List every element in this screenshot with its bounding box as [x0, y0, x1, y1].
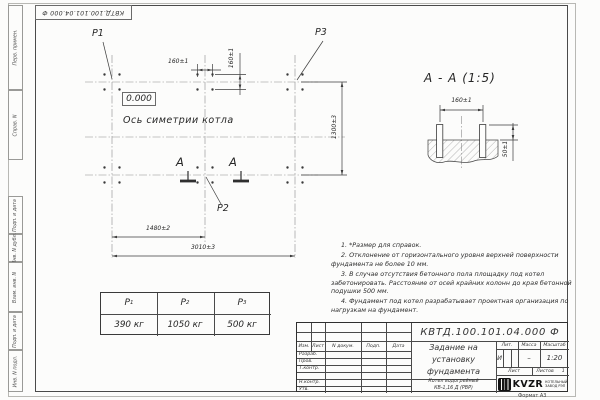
anchor-bolt-right [480, 125, 486, 158]
dim-section-protrusion: 50±1 [500, 134, 512, 164]
elevation-mark: 0.000 [122, 92, 156, 106]
load-table: Р1 Р2 Р3 390 кг 1050 кг 500 кг [100, 292, 270, 335]
load-label-p1: Р1 [92, 29, 104, 39]
section-view-title: А - А (1:5) [424, 72, 496, 84]
dim-bolt-spacing-v: 160±1 [226, 43, 238, 73]
anchor-bolt-left [437, 125, 443, 158]
drawing-title: Задание на установку фундамента [411, 341, 496, 379]
mass-header: Масса [518, 341, 540, 349]
load-table-header-p1: Р1 [101, 293, 157, 313]
section-letter-left: А [176, 157, 184, 169]
load-table-value-p3: 500 кг [214, 314, 270, 335]
section-cut-marks [180, 171, 249, 181]
company-logo: KVZR КОТЕЛЬНЫЙ ЗАВОД РЭП [496, 375, 569, 393]
role-razrab: Разраб. [297, 351, 327, 358]
dim-plan-total-width: 3010±3 [185, 245, 221, 251]
scale-header: Масштаб [540, 341, 569, 349]
note-2: 2. Отклонение от горизонтального уровня … [331, 252, 574, 270]
kvzr-logo-icon [498, 378, 511, 391]
kvzr-logo-subtext: КОТЕЛЬНЫЙ ЗАВОД РЭП [545, 380, 567, 389]
section-foundation-block [428, 125, 498, 163]
drawing-sheet: КВТД.100.101.04.000 Ф Перв. примен. Спра… [0, 0, 600, 400]
lit-value: И [496, 349, 503, 367]
rev-header-docnum: N докум. [325, 341, 361, 351]
load-table-header-p3: Р3 [214, 293, 270, 313]
dim-bolt-spacing-h: 160±1 [168, 59, 188, 65]
load-label-p2: Р2 [217, 204, 229, 214]
note-3: 3. В случае отсутствия бетонного пола пл… [331, 271, 574, 298]
format-label: Формат А3 [518, 394, 546, 399]
kvzr-logo-text: KVZR [513, 379, 544, 390]
role-utv: Утв. [297, 386, 327, 393]
dim-section-bolt-spacing: 160±1 [443, 98, 480, 104]
role-prov: Пров. [297, 358, 327, 365]
rev-header-izm: Изм. [297, 341, 311, 351]
dim-plan-mid-width: 1480±2 [140, 226, 176, 232]
load-table-header-p2: Р2 [157, 293, 213, 313]
scale-value: 1:20 [540, 349, 569, 367]
symmetry-axis-label: Ось симетрии котла [123, 116, 234, 126]
rev-header-podp: Подп. [361, 341, 386, 351]
anchor-bolt-dots [103, 73, 303, 183]
note-1: 1. *Размер для справок. [331, 242, 574, 251]
rev-header-list: Лист [311, 341, 325, 351]
doc-number: КВТД.100.101.04.000 Ф [411, 323, 569, 341]
notes-block: 1. *Размер для справок. 2. Отклонение от… [331, 242, 574, 317]
lit-header: Лит. [496, 341, 518, 349]
rev-header-data: Дата [386, 341, 411, 351]
dim-plan-height: 1300±3 [329, 112, 341, 142]
load-table-value-p2: 1050 кг [157, 314, 213, 335]
sheets-cell: Листов 1 [532, 367, 569, 375]
load-table-value-p1: 390 кг [101, 314, 157, 335]
mass-value: – [518, 349, 540, 367]
sheet-label: Лист [496, 367, 532, 375]
sheets-value: 1 [562, 369, 565, 374]
sheets-label: Листов [536, 369, 554, 374]
section-letter-right: А [229, 157, 237, 169]
product-name: Котел водогрейный КВ-1,16 Д (РВР) [411, 379, 496, 393]
title-block: Изм. Лист N докум. Подп. Дата Разраб. Пр… [296, 322, 568, 392]
note-4: 4. Фундамент под котел разрабатывает про… [331, 298, 574, 316]
load-label-p3: Р3 [315, 28, 327, 38]
role-tkontr: Т.контр. [297, 365, 327, 372]
role-nkontr: Н.контр. [297, 379, 327, 386]
